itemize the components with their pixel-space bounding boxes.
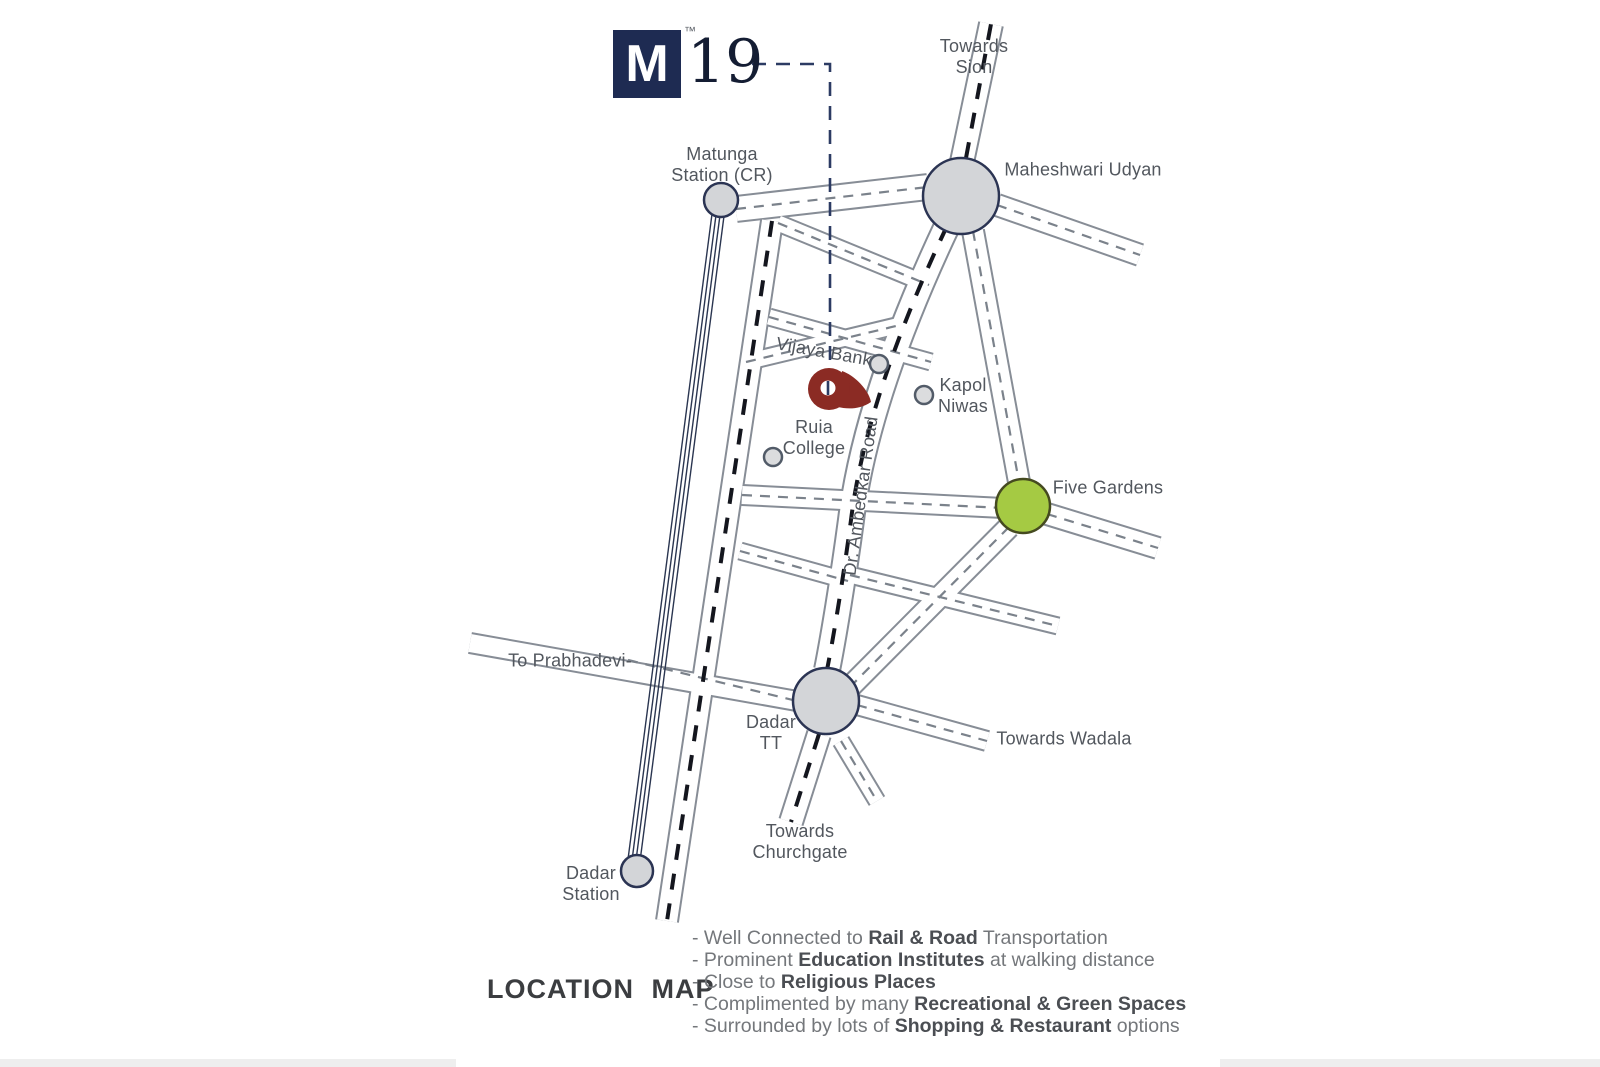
maheshwari-udyan-node bbox=[923, 158, 999, 234]
m19-logo-mark: M bbox=[613, 30, 681, 98]
label-five-gardens: Five Gardens bbox=[1053, 478, 1163, 499]
location-map-page: { "logo": { "m": "M", "tm": "™", "number… bbox=[0, 0, 1600, 1067]
label-to-prabhadevi: To Prabhadevi- bbox=[508, 651, 632, 672]
five-gardens-node bbox=[996, 479, 1050, 533]
bottom-strip-right bbox=[1220, 1059, 1600, 1067]
map-canvas bbox=[0, 0, 1600, 1067]
legend-list: - Well Connected to Rail & Road Transpor… bbox=[692, 927, 1186, 1037]
label-dadar-tt: DadarTT bbox=[746, 712, 796, 754]
legend-item: - Well Connected to Rail & Road Transpor… bbox=[692, 927, 1186, 949]
label-matunga-station: MatungaStation (CR) bbox=[671, 144, 772, 186]
label-towards-sion: TowardsSion bbox=[940, 36, 1008, 78]
location-map-title: LOCATION MAP bbox=[487, 974, 714, 1005]
bottom-strip-left bbox=[0, 1059, 456, 1067]
label-kapol-niwas: KapolNiwas bbox=[938, 375, 988, 417]
legend-item: - Surrounded by lots of Shopping & Resta… bbox=[692, 1015, 1186, 1037]
matunga-station-node bbox=[704, 183, 738, 217]
m19-logo-number: 19 bbox=[687, 32, 763, 92]
label-towards-wadala: Towards Wadala bbox=[996, 729, 1131, 750]
label-ruia-college: RuiaCollege bbox=[783, 417, 845, 459]
label-dadar-station: DadarStation bbox=[562, 863, 619, 905]
vijaya-bank-poi bbox=[870, 355, 888, 373]
label-maheshwari-udyan: Maheshwari Udyan bbox=[1004, 160, 1161, 181]
legend-item: - Prominent Education Institutes at walk… bbox=[692, 949, 1186, 971]
label-towards-churchgate: TowardsChurchgate bbox=[752, 821, 847, 863]
legend-item: - Complimented by many Recreational & Gr… bbox=[692, 993, 1186, 1015]
legend-item: - Close to Religious Places bbox=[692, 971, 1186, 993]
dadar-station-node bbox=[621, 855, 653, 887]
ruia-college-poi bbox=[764, 448, 782, 466]
kapol-niwas-poi bbox=[915, 386, 933, 404]
dadar-tt-node bbox=[793, 668, 859, 734]
location-pin bbox=[808, 368, 871, 410]
railway-line bbox=[627, 214, 724, 869]
